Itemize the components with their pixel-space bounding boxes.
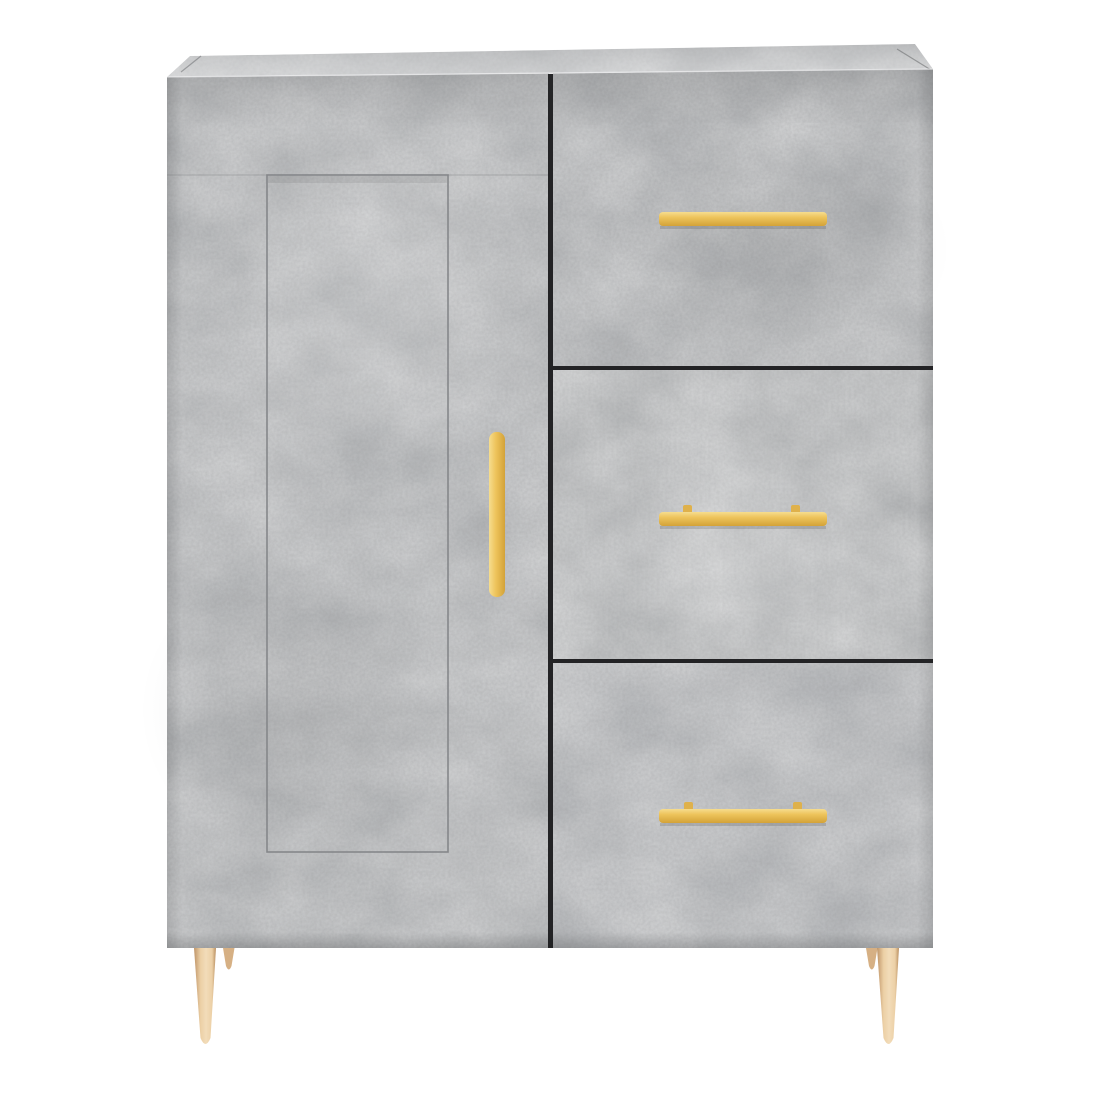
drawer-gap-1 — [553, 366, 933, 370]
bottom-edge-shading — [167, 932, 933, 948]
drawer-2-handle — [659, 512, 827, 526]
drawer-3-front — [553, 663, 933, 948]
leg-front-right — [877, 948, 899, 1044]
drawer-2-handle-shadow — [660, 526, 826, 529]
drawer-1-handle-shadow — [660, 226, 826, 229]
leg-rear-right — [866, 948, 878, 970]
door-dark-patch — [140, 560, 460, 860]
door-panel-top-recess-shadow — [268, 176, 447, 183]
left-edge-shading — [167, 77, 182, 948]
drawer-1-handle — [659, 212, 827, 226]
drawer-3-handle — [659, 809, 827, 823]
drawer-1-dark-patch — [610, 130, 950, 370]
sideboard-product-photo — [0, 0, 1100, 1100]
under-top-shadow — [167, 69, 933, 128]
drawer-gap-2 — [553, 659, 933, 663]
drawer-3-handle-shadow — [660, 823, 826, 826]
drawer-3 — [553, 663, 933, 948]
leg-rear-left — [223, 948, 235, 970]
product-image-canvas — [0, 0, 1100, 1100]
leg-front-left — [194, 948, 216, 1044]
door-drawer-divider-gap — [548, 74, 553, 948]
drawer-2-light-patch — [570, 430, 910, 690]
door-handle — [489, 432, 505, 597]
right-edge-shading — [917, 70, 933, 948]
